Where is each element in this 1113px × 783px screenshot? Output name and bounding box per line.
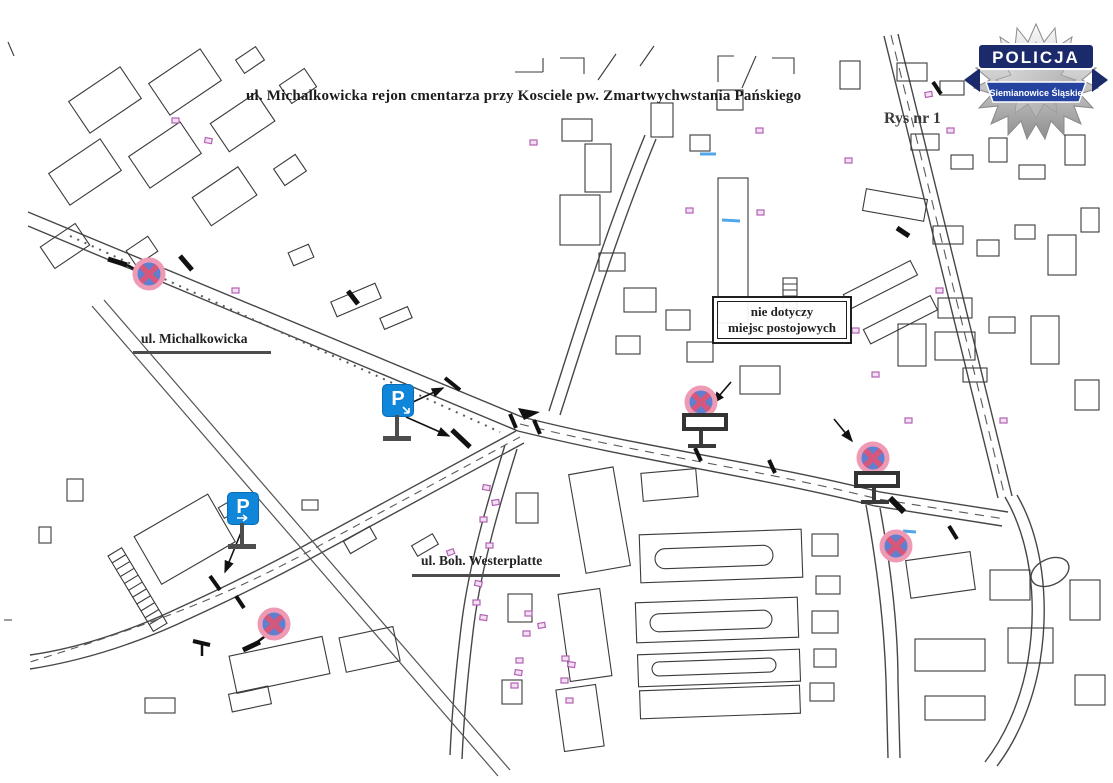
badge-wing-right (1092, 68, 1108, 92)
parking-arrow-icon (402, 405, 412, 415)
sign-plate-icon (682, 413, 728, 431)
street-label-underline (133, 351, 271, 354)
parking-sign-face: P (382, 384, 414, 417)
parking-sign-1: P (382, 384, 414, 417)
no-stopping-sign-4 (878, 528, 914, 564)
no-stopping-sign-5 (256, 606, 292, 642)
street-label-westerplatte: ul. Boh. Westerplatte (421, 553, 542, 569)
sign-post (699, 431, 703, 444)
note-line-1: nie dotyczy (751, 304, 813, 320)
sign-post (395, 415, 399, 437)
sign-plate-icon (854, 471, 900, 488)
map-page: P P ul. Michalkowicka rejon cmentarza pr… (0, 0, 1113, 783)
badge-wing-left (964, 68, 980, 92)
map-title: ul. Michalkowicka rejon cmentarza przy K… (246, 88, 801, 105)
parking-sign-face: P (227, 492, 259, 525)
badge-unit-text: Siemianowice Śląskie (989, 87, 1082, 98)
badge-org-text: POLICJA (992, 48, 1080, 67)
police-badge: POLICJA Siemianowice Śląskie (958, 20, 1110, 158)
sign-post-base (228, 544, 256, 549)
sign-post-base (383, 436, 411, 441)
parking-sign-2: P (227, 492, 259, 525)
parking-arrow-icon (236, 514, 252, 522)
note-box: nie dotyczy miejsc postojowych (712, 296, 852, 344)
map-linework (0, 0, 1113, 783)
street-label-underline (412, 574, 560, 577)
figure-number: Rys nr 1 (884, 110, 941, 128)
note-line-2: miejsc postojowych (728, 320, 836, 336)
sign-post-base (688, 444, 716, 448)
street-label-michalkowicka: ul. Michalkowicka (141, 331, 248, 347)
no-stopping-sign-1 (131, 256, 167, 292)
sign-post (872, 488, 876, 500)
sign-post (240, 523, 244, 545)
sign-post-base (861, 500, 889, 504)
